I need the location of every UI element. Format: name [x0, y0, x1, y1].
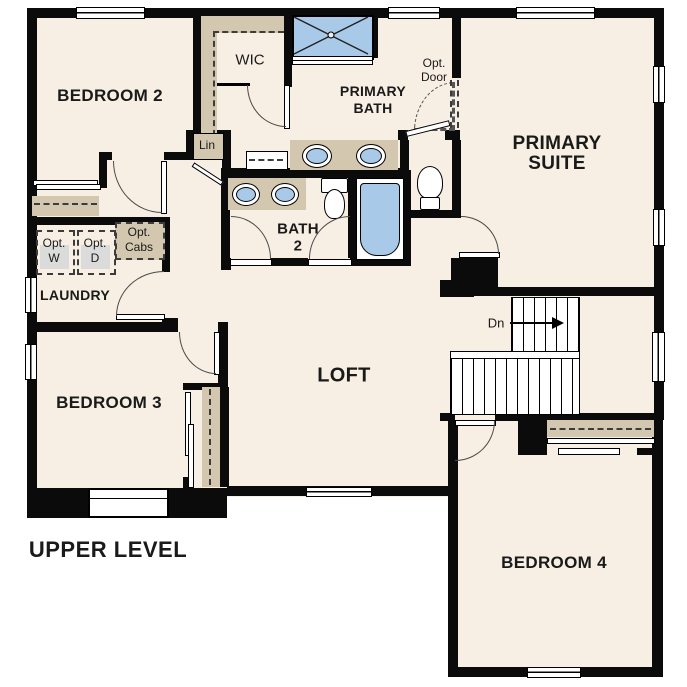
shower-door — [292, 56, 373, 65]
room-label-primary-bath-2: BATH — [353, 100, 392, 116]
wall-suite-bottom — [498, 287, 654, 296]
window — [653, 66, 665, 103]
sink — [356, 144, 386, 168]
room-label-primary-suite-2: SUITE — [528, 153, 585, 175]
window — [25, 344, 37, 380]
room-label-loft: LOFT — [317, 365, 370, 388]
window — [652, 332, 665, 382]
label-opt-washer-2: W — [48, 251, 59, 265]
wall-wc-bottom — [400, 210, 461, 218]
sink — [302, 144, 332, 168]
label-linen: Lin — [199, 138, 215, 152]
toilet — [324, 189, 345, 219]
label-opt-dryer-1: Opt. — [84, 236, 107, 250]
wall-laundry-bottom — [27, 322, 178, 332]
room-label-bath2-1: BATH — [277, 221, 319, 238]
window — [388, 7, 440, 19]
label-opt-cabs-1: Opt. — [128, 225, 151, 239]
wall-wic-door-header — [217, 83, 250, 86]
window — [527, 667, 581, 678]
label-opt-dryer-2: D — [91, 251, 100, 265]
sink — [232, 183, 260, 206]
toilet — [417, 166, 443, 199]
door-leaf — [230, 259, 272, 266]
label-opt-washer-1: Opt. — [43, 236, 66, 250]
stairs-lower-flight — [450, 358, 580, 415]
closet-rod — [213, 31, 215, 136]
toilet-tank — [420, 197, 440, 210]
sliding-door — [36, 184, 101, 190]
window — [76, 7, 145, 19]
room-label-primary-bath-1: PRIMARY — [340, 83, 406, 99]
wall-suite-left — [452, 8, 461, 78]
room-label-bath2-2: 2 — [294, 238, 303, 255]
bedroom2-closet-shelf — [32, 196, 99, 216]
shower — [292, 15, 374, 60]
wall-linen-left — [186, 130, 193, 158]
floor-plan: BEDROOM 2 WIC PRIMARY BATH Opt. Door PRI… — [0, 0, 687, 687]
label-opt-cabs-2: Cabs — [125, 240, 153, 254]
opt-door-leaf — [457, 80, 459, 128]
opt-door-leaf — [450, 80, 452, 128]
room-label-bedroom2: BEDROOM 2 — [57, 86, 163, 106]
wall-bedroom2-wic — [193, 8, 201, 140]
wall-bedroom4-closet — [518, 415, 547, 455]
label-opt-door-2: Door — [421, 70, 447, 84]
closet-rod — [209, 389, 211, 485]
wall-wic-right — [284, 8, 292, 87]
window — [306, 487, 372, 497]
closet-rod — [550, 428, 651, 430]
sliding-door-track — [547, 438, 655, 444]
window — [653, 209, 665, 246]
bedroom3-closet — [202, 387, 220, 487]
room-label-laundry: LAUNDRY — [40, 287, 110, 303]
opt-linen-cabinet — [246, 151, 288, 170]
room-label-bedroom4: BEDROOM 4 — [501, 553, 607, 573]
label-stairs-down: Dn — [488, 316, 505, 331]
floor-bedroom4 — [448, 415, 663, 677]
stairs-upper-flight — [511, 297, 580, 355]
sliding-door — [558, 448, 620, 455]
wall-wc-right — [452, 140, 461, 218]
wall — [440, 280, 474, 297]
stairs-down-arrow-head — [552, 317, 564, 329]
window — [516, 7, 595, 19]
stairs-down-arrow-line — [510, 322, 554, 324]
bathtub — [360, 183, 400, 256]
wall-bath2-bottom — [270, 258, 308, 266]
label-opt-door-1: Opt. — [423, 56, 446, 70]
closet-rod — [34, 203, 97, 205]
wall — [637, 448, 654, 455]
door-leaf — [308, 259, 352, 266]
wall-bedroom3-closet-right — [219, 387, 229, 487]
sink — [271, 183, 299, 206]
window-bay — [88, 488, 169, 518]
room-label-primary-suite-1: PRIMARY — [512, 133, 601, 155]
window — [25, 277, 37, 313]
wall — [99, 152, 107, 188]
sliding-door — [188, 424, 194, 488]
closet-rod — [213, 31, 284, 33]
plan-title: UPPER LEVEL — [29, 537, 187, 563]
room-label-wic: WIC — [235, 52, 264, 69]
room-label-bedroom3: BEDROOM 3 — [56, 393, 162, 413]
wall-wc-top — [445, 130, 460, 140]
